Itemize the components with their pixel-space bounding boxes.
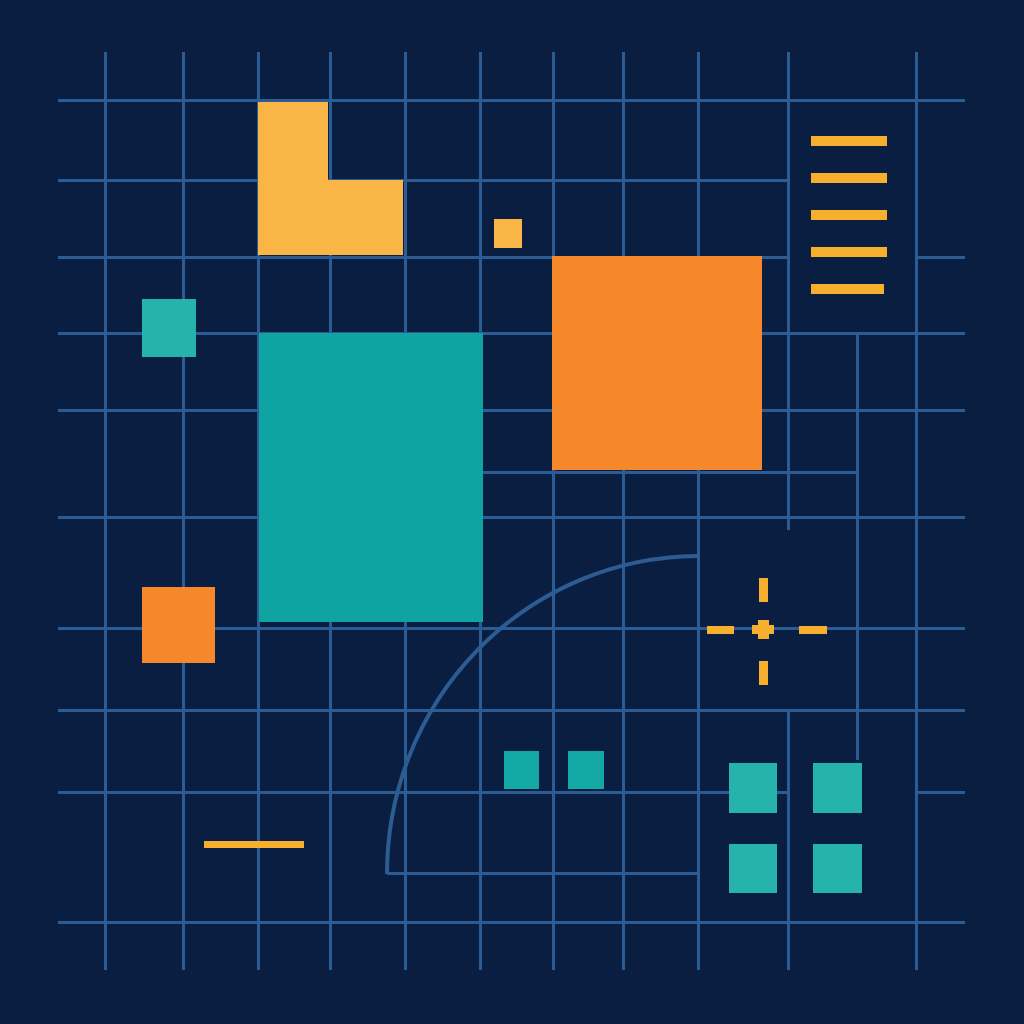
teal-mini-square-1 (504, 751, 539, 789)
teal-grid-square-br (813, 844, 862, 893)
grid-horizontal-line (58, 516, 965, 519)
amber-dash-bottom-left (204, 841, 304, 848)
teal-grid-square-tl (729, 763, 777, 813)
grid-vertical-line (856, 333, 859, 760)
amber-bar-4 (811, 247, 887, 257)
crosshair-bottom-tick (759, 661, 768, 685)
grid-vertical-line (787, 52, 790, 530)
amber-bar-2 (811, 173, 887, 183)
amber-bar-3 (811, 210, 887, 220)
amber-bar-1 (811, 136, 887, 146)
orange-small-square-left (142, 587, 215, 663)
crosshair-top-tick (759, 578, 768, 602)
teal-grid-square-tr (813, 763, 862, 813)
grid-horizontal-line (58, 409, 965, 412)
grid-vertical-line (622, 52, 625, 970)
crosshair-left-tick (707, 626, 734, 634)
grid-vertical-line (552, 52, 555, 970)
teal-mini-square-2 (568, 751, 604, 789)
grid-horizontal-line (387, 872, 700, 875)
blueprint-canvas (0, 0, 1024, 1024)
teal-small-square-left (142, 299, 196, 357)
crosshair-right-tick (799, 626, 827, 634)
grid-horizontal-line (58, 709, 965, 712)
teal-grid-square-bl (729, 844, 777, 893)
quarter-arc (0, 0, 1024, 1024)
orange-large-square (552, 256, 762, 470)
grid-horizontal-line (58, 99, 965, 102)
amber-small-square (494, 219, 522, 248)
amber-bar-5 (811, 284, 884, 294)
grid-vertical-line (182, 52, 185, 970)
crosshair-center-h (752, 625, 774, 634)
grid-vertical-line (787, 710, 790, 970)
grid-horizontal-line (58, 791, 788, 794)
grid-vertical-line (697, 52, 700, 970)
grid-vertical-line (915, 52, 918, 970)
teal-large-rect (259, 333, 483, 622)
grid-horizontal-line (915, 256, 965, 259)
grid-horizontal-line (916, 791, 965, 794)
grid-horizontal-line (58, 921, 965, 924)
grid-horizontal-line (58, 179, 788, 182)
grid-horizontal-line (483, 471, 857, 474)
grid-vertical-line (104, 52, 107, 970)
